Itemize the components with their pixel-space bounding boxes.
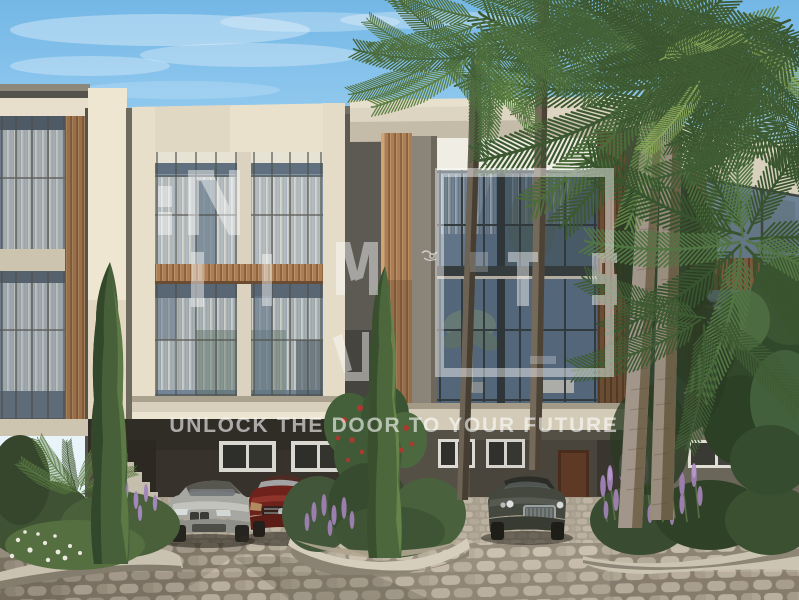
svg-text:UNLOCK THE DOOR TO YOUR FUTURE: UNLOCK THE DOOR TO YOUR FUTURE [169,414,618,437]
